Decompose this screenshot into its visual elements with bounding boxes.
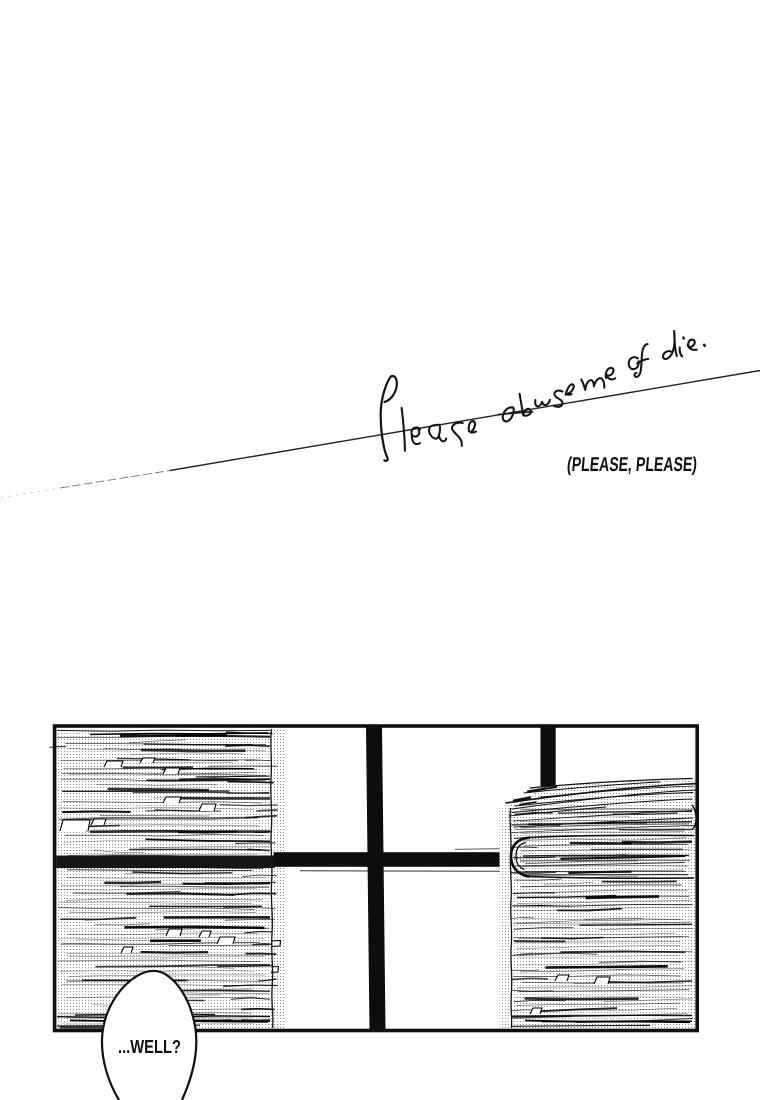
svg-text:...WELL?: ...WELL? — [118, 1037, 181, 1057]
svg-text:(PLEASE, PLEASE): (PLEASE, PLEASE) — [566, 454, 698, 476]
